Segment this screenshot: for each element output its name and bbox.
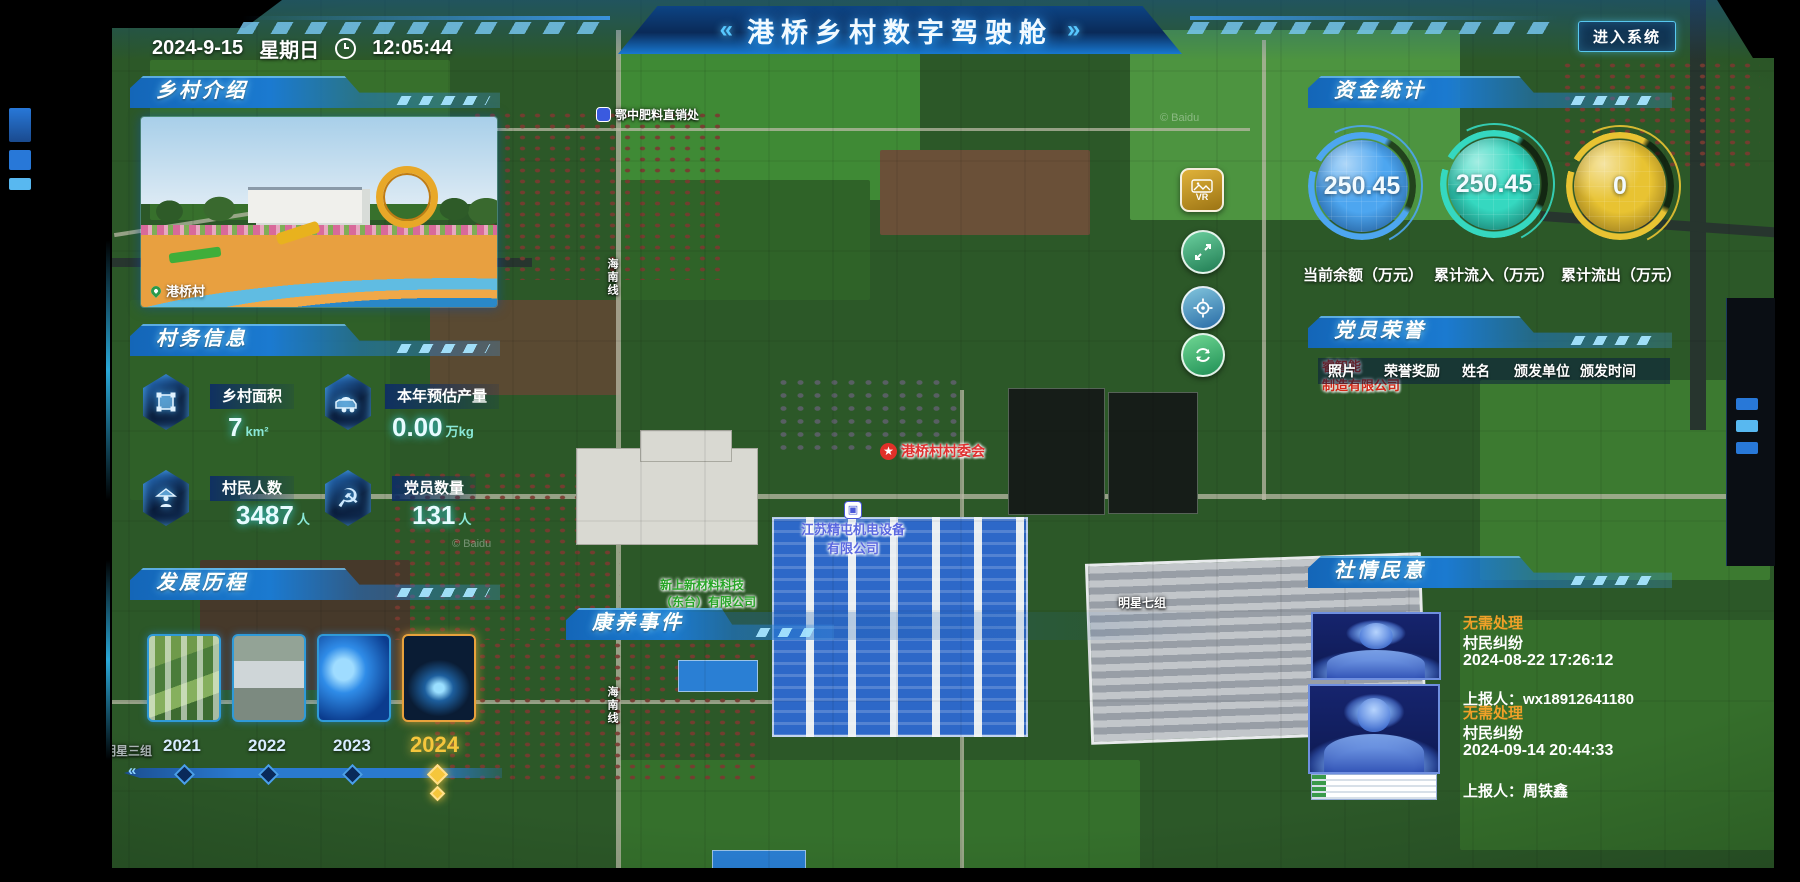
dashboard: 鄂中肥料直销处 ★ 港桥村村委会 ▣ 江苏精屯机电设备 有限公司 新上新材料科技…: [0, 0, 1800, 882]
frame-accent-line: [106, 240, 110, 500]
gauge-value: 250.45: [1456, 170, 1532, 199]
sentiment-type: 村民纠纷: [1463, 632, 1523, 653]
history-thumb-2023[interactable]: [317, 634, 391, 722]
sentiment-avatar: [1308, 684, 1440, 774]
column-date: 颁发时间: [1580, 361, 1636, 381]
poi-company-jingsu[interactable]: ▣ 江苏精屯机电设备 有限公司: [788, 500, 918, 557]
party-table-header: 照片 荣誉奖励 姓名 颁发单位 颁发时间: [1318, 358, 1670, 384]
expand-icon: [1193, 242, 1213, 262]
frame-accent: [1736, 398, 1758, 410]
frame-accent: [1736, 442, 1758, 454]
frame-accent-line: [106, 560, 110, 760]
frame-accent: [9, 178, 31, 190]
sentiment-reporter: 上报人：周铁鑫: [1463, 780, 1568, 801]
stat-value: 131人: [412, 500, 471, 531]
panel-title: 村务信息: [156, 324, 248, 355]
fullscreen-button[interactable]: [1181, 230, 1225, 274]
refresh-button[interactable]: [1181, 333, 1225, 377]
panorama-icon: [1191, 179, 1213, 193]
photo-building: [248, 187, 362, 222]
gauge-label: 累计流出（万元）: [1546, 264, 1696, 285]
gauge-outflow: 0: [1568, 134, 1672, 238]
vr-panorama-button[interactable]: VR: [1180, 168, 1224, 212]
poi-label: 鄂中肥料直销处: [615, 106, 699, 123]
poi-village-committee[interactable]: ★ 港桥村村委会: [880, 441, 985, 461]
banner-wing-right: [1190, 16, 1560, 32]
history-thumb-2021[interactable]: [147, 634, 221, 722]
history-thumb-2022[interactable]: [232, 634, 306, 722]
column-honor: 荣誉奖励: [1384, 361, 1440, 381]
stat-unit: km²: [245, 424, 268, 439]
frame-bottom: [0, 868, 1800, 882]
panel-title: 党员荣誉: [1334, 316, 1426, 347]
sentiment-status: 无需处理: [1463, 702, 1523, 723]
stat-label: 村民人数: [210, 476, 294, 501]
baidu-watermark: © Baidu: [1160, 112, 1199, 124]
weekday-text: 星期日: [259, 34, 319, 63]
title-banner: « 港桥乡村数字驾驶舱 »: [618, 6, 1182, 54]
stat-number: 131: [412, 500, 455, 530]
photo-loop-sculpture: [376, 166, 438, 228]
stat-unit: 人: [458, 512, 471, 527]
sentiment-status: 无需处理: [1463, 612, 1523, 633]
stat-value: 7km²: [228, 412, 269, 443]
stat-number: 0.00: [392, 412, 443, 442]
building-marker-icon: ▣: [844, 501, 862, 519]
frame-accent: [9, 150, 31, 170]
gauge-value: 0: [1613, 172, 1627, 201]
map-label-group7: 明星七组: [1118, 594, 1166, 611]
vr-label: VR: [1196, 193, 1209, 201]
sentiment-avatar: [1311, 612, 1441, 680]
column-issuer: 颁发单位: [1514, 361, 1570, 381]
column-photo: 照片: [1328, 361, 1356, 381]
sentiment-time: 2024-09-14 20:44:33: [1463, 742, 1613, 760]
baidu-watermark: © Baidu: [452, 538, 491, 550]
time-text: 12:05:44: [372, 37, 452, 60]
timeline-chevron-icon[interactable]: «: [128, 762, 136, 779]
page-title: 港桥乡村数字驾驶舱: [747, 11, 1053, 50]
stat-unit: 人: [297, 512, 310, 527]
poi-marker-icon: [596, 107, 611, 122]
panel-title: 资金统计: [1334, 76, 1426, 107]
photo-caption-text: 港桥村: [166, 281, 205, 300]
gauge-balance: 250.45: [1310, 134, 1414, 238]
gauge-value: 250.45: [1324, 172, 1400, 201]
road-label: 海南线: [604, 686, 620, 725]
year-2024[interactable]: 2024: [410, 732, 459, 758]
history-thumb-2024[interactable]: [402, 634, 476, 722]
date-text: 2024-9-15: [152, 37, 243, 60]
frame-accent: [9, 108, 31, 142]
poi-label: 港桥村村委会: [901, 441, 985, 461]
stat-label: 乡村面积: [210, 384, 294, 409]
stat-label: 党员数量: [392, 476, 476, 501]
frame-accent: [1736, 420, 1758, 432]
sentiment-time: 2024-08-22 17:26:12: [1463, 652, 1613, 670]
gauge-inflow: 250.45: [1442, 132, 1546, 236]
road-label: 海南线: [604, 258, 620, 297]
locate-icon: [1193, 298, 1213, 318]
sentiment-type: 村民纠纷: [1463, 722, 1523, 743]
year-2022[interactable]: 2022: [248, 736, 286, 756]
gauge-label: 当前余额（万元）: [1288, 264, 1438, 285]
refresh-icon: [1193, 345, 1213, 365]
stat-number: 7: [228, 412, 242, 442]
panel-title: 社情民意: [1334, 556, 1426, 587]
location-pin-icon: [149, 283, 163, 297]
star-marker-icon: ★: [880, 443, 897, 460]
frame-right: [1774, 0, 1800, 882]
stat-unit: 万kg: [446, 424, 474, 439]
stat-value: 0.00万kg: [392, 412, 474, 443]
panel-title: 发展历程: [156, 568, 248, 599]
stat-value: 3487人: [236, 500, 310, 531]
year-2021[interactable]: 2021: [163, 736, 201, 756]
clock-icon: [335, 38, 356, 59]
column-name: 姓名: [1462, 361, 1490, 381]
enter-system-button[interactable]: 进入系统: [1578, 21, 1676, 52]
sentiment-doc-thumbnail[interactable]: [1311, 774, 1437, 800]
banner-wing-left: [240, 16, 610, 32]
panel-title: 乡村介绍: [156, 76, 248, 107]
photo-caption: 港桥村: [151, 281, 205, 300]
stat-label: 本年预估产量: [385, 384, 499, 409]
frame-right-block: [1726, 298, 1775, 566]
year-2023[interactable]: 2023: [333, 736, 371, 756]
poi-fertilizer[interactable]: 鄂中肥料直销处: [596, 106, 699, 123]
poi-company-xinshang[interactable]: 新上新材料科技 （东台）有限公司: [660, 576, 756, 610]
locate-button[interactable]: [1181, 286, 1225, 330]
datetime: 2024-9-15 星期日 12:05:44: [152, 34, 452, 63]
village-intro-photo[interactable]: 港桥村: [140, 116, 498, 308]
stat-number: 3487: [236, 500, 294, 530]
right-chevron-icon: »: [1067, 16, 1080, 44]
left-chevron-icon: «: [720, 16, 733, 44]
panel-title: 康养事件: [592, 608, 684, 639]
